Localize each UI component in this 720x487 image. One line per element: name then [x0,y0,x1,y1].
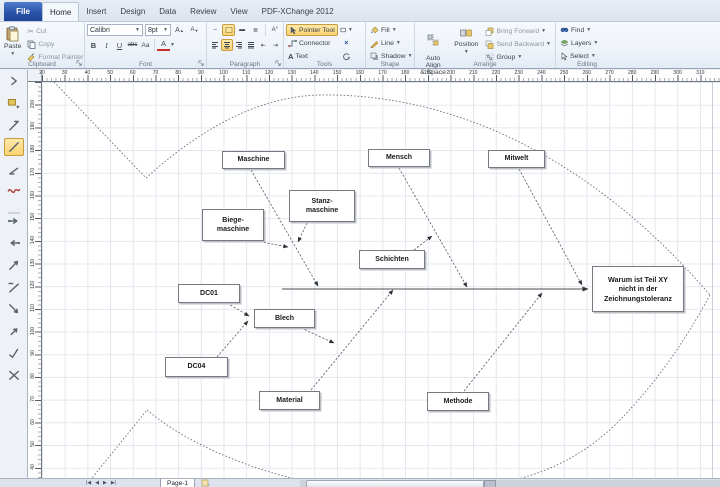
first-page-button[interactable]: |◀ [86,479,91,487]
position-icon [459,26,473,40]
tab-home[interactable]: Home [42,2,79,21]
paste-caret-icon: ▼ [10,51,15,57]
stencil-fishbone-shape-icon[interactable] [4,182,24,200]
stencil-line-shape-icon[interactable] [4,160,24,178]
h-ruler-label: 290 [648,70,662,76]
diagram-box-mensch[interactable]: Mensch [368,149,430,167]
diagram-box-dc04[interactable]: DC04 [165,357,228,377]
pointer-tool-icon [289,26,297,35]
font-dialog-launcher-icon[interactable] [198,60,205,67]
paste-button[interactable]: Paste ▼ [2,24,23,63]
connection-point-tool-button[interactable]: × [340,37,353,49]
v-ruler-label: 160 [30,188,36,202]
cut-button[interactable]: ✂ Cut [25,25,85,37]
font-color-caret-icon[interactable]: ▼ [170,42,175,48]
v-ruler-label: 90 [30,346,36,360]
h-ruler-label: 20 [35,70,49,76]
h-ruler-label: 300 [671,70,685,76]
ribbon: Paste ▼ ✂ Cut [0,22,720,69]
diagram-box-methode[interactable]: Methode [427,392,489,411]
cut-icon: ✂ [27,27,34,36]
highlighted-paragraph-button[interactable] [222,24,234,36]
h-ruler-label: 150 [330,70,344,76]
v-ruler-label: 170 [30,165,36,179]
diagram-box-mitwelt[interactable]: Mitwelt [488,150,545,168]
tab-design[interactable]: Design [113,2,152,21]
diagram-box-blech[interactable]: Blech [254,309,315,328]
h-ruler-label: 160 [353,70,367,76]
align-right-button[interactable] [234,39,245,51]
h-ruler-label: 280 [625,70,639,76]
h-ruler-label: 140 [307,70,321,76]
stencil-diagonal-arrow-up-icon[interactable] [4,256,24,274]
tab-insert[interactable]: Insert [79,2,113,21]
stencil-small-arrow-icon[interactable] [4,322,24,340]
justify-button[interactable] [246,39,257,51]
find-button[interactable]: Find▼ [558,24,616,36]
v-ruler-label: 100 [30,324,36,338]
find-icon [560,26,569,35]
shrink-font-button[interactable]: A▼ [188,24,201,36]
stencil-selected-shape-icon[interactable] [4,138,24,156]
diagram-box-schichten[interactable]: Schichten [359,250,425,269]
v-ruler-label: 120 [30,278,36,292]
stencil-check-arrow-icon[interactable] [4,344,24,362]
v-ruler-label: 180 [30,142,36,156]
stencil-collapse-chevron-icon[interactable] [4,72,24,90]
font-color-button[interactable]: A [157,39,170,51]
v-ruler-label: 70 [30,392,36,406]
v-ruler-label: 130 [30,256,36,270]
v-ruler-label: 150 [30,210,36,224]
group-clipboard: Paste ▼ ✂ Cut [0,22,85,68]
v-ruler-label: 80 [30,369,36,383]
rectangle-tool-button[interactable]: ▼ [340,24,353,36]
diagram-box-dc01[interactable]: DC01 [178,284,240,303]
h-ruler-label: 170 [376,70,390,76]
v-ruler-label: 40 [30,460,36,474]
group-editing: Find▼ Layers▼ Select▼ Editing [556,22,618,68]
decrease-indent-button[interactable]: ⇤ [258,39,269,51]
stencil-arrow-right-icon[interactable] [4,212,24,230]
position-button[interactable]: Position ▼ [452,24,480,76]
strikethrough-button[interactable]: abc [126,39,139,51]
text-tool-icon: A [288,52,293,61]
tab-data[interactable]: Data [152,2,183,21]
auto-align-icon [426,26,440,54]
h-ruler-label: 30 [58,70,72,76]
vertical-ruler: 2001901801701601501401301201101009080706… [28,82,42,478]
stencil-crossed-arrows-icon[interactable] [4,366,24,384]
fill-button[interactable]: Fill▼ [368,24,412,36]
font-size-select[interactable]: 8pt▼ [145,24,171,36]
h-ruler-label: 80 [171,70,185,76]
v-ruler-label: 110 [30,301,36,315]
h-ruler-label: 130 [285,70,299,76]
text-direction-button[interactable]: A° [269,24,281,36]
italic-button[interactable]: I [100,39,113,51]
stencil-shapes-window-icon[interactable] [4,94,24,112]
h-ruler-label: 90 [194,70,208,76]
connector-button[interactable]: Connector [286,37,338,49]
shadow-icon [370,52,379,61]
h-ruler-label: 270 [603,70,617,76]
h-ruler-label: 100 [217,70,231,76]
last-page-button[interactable]: ▶| [111,479,116,487]
diagram-box-biege[interactable]: Biege- maschine [202,209,264,241]
v-ruler-label: 190 [30,119,36,133]
v-ruler-label: 50 [30,437,36,451]
underline-button[interactable]: U [113,39,126,51]
auto-align-space-button[interactable]: Auto Align & Space [417,24,449,76]
page-tab-bar: |◀ ◀ ▶ ▶| Page-1 [0,478,720,487]
bring-forward-icon [485,27,494,36]
page-tab[interactable]: Page-1 [160,479,195,487]
ribbon-tabs: HomeInsertDesignDataReviewViewPDF-XChang… [42,2,341,21]
h-ruler-label: 310 [693,70,707,76]
h-ruler-label: 110 [239,70,253,76]
group-paragraph: – ▬ ≣ A° [207,22,284,68]
group-arrange: Auto Align & Space Position ▼ Bring Forw… [415,22,556,68]
stencil-arrow-left-icon[interactable] [4,234,24,252]
group-shape: Fill▼ Line▼ Shadow▼ Shape [366,22,415,68]
h-ruler-label: 60 [126,70,140,76]
paragraph-dialog-launcher-icon[interactable] [275,60,282,67]
v-ruler-label: 140 [30,233,36,247]
line-spacing-button[interactable]: ▬ [236,24,248,36]
grow-font-button[interactable]: A▲ [173,24,186,36]
bring-forward-button[interactable]: Bring Forward▼ [483,25,553,37]
stencil-diagonal-line-icon[interactable] [4,278,24,296]
next-page-button[interactable]: ▶ [103,479,107,487]
previous-page-button[interactable]: ◀ [95,479,99,487]
change-case-button[interactable]: Aa [139,39,152,51]
stencil-diagonal-arrow-down-icon[interactable] [4,300,24,318]
h-ruler-label: 260 [580,70,594,76]
align-center-button[interactable] [221,39,232,51]
tab-review[interactable]: Review [183,2,223,21]
stencil-category-shape-icon[interactable] [4,116,24,134]
h-ruler-label: 180 [398,70,412,76]
diagram-box-stanz[interactable]: Stanz- maschine [289,190,355,222]
copy-icon [27,40,36,49]
horizontal-scrollbar-thumb[interactable] [306,480,484,487]
h-ruler-label: 40 [80,70,94,76]
visio-window: File HomeInsertDesignDataReviewViewPDF-X… [0,0,720,487]
diagram-box-maschine[interactable]: Maschine [222,151,285,169]
group-tools: Pointer Tool Connector A Text [284,22,366,68]
insert-page-icon[interactable] [201,479,210,487]
layers-icon [560,39,569,48]
shapes-stencil-panel [0,70,28,478]
bold-button[interactable]: B [87,39,100,51]
font-family-select[interactable]: Calibri▼ [87,24,143,36]
align-left-button[interactable] [209,39,220,51]
send-backward-button[interactable]: Send Backward▼ [483,38,553,50]
copy-button[interactable]: Copy [25,38,85,50]
h-ruler-label: 120 [262,70,276,76]
line-button[interactable]: Line▼ [368,37,412,49]
h-ruler-label: 70 [149,70,163,76]
bullets-button[interactable]: – [209,24,221,36]
layers-button[interactable]: Layers▼ [558,37,616,49]
h-ruler-label: 50 [103,70,117,76]
connector-icon [288,39,297,48]
tab-view[interactable]: View [223,2,254,21]
v-ruler-label: 200 [30,97,36,111]
line-icon [370,39,379,48]
ribbon-tab-bar: File HomeInsertDesignDataReviewViewPDF-X… [0,0,720,22]
h-ruler-label: 250 [557,70,571,76]
tab-pdf-xchange-2012[interactable]: PDF-XChange 2012 [255,2,341,21]
diagram-box-effect[interactable]: Warum ist Teil XY nicht in der Zeichnung… [592,266,684,312]
paste-icon [5,26,20,42]
scrollbar-splitter[interactable] [484,480,496,487]
list-button[interactable]: ≣ [249,24,261,36]
clipboard-dialog-launcher-icon[interactable] [76,60,83,67]
horizontal-scrollbar[interactable] [300,480,720,487]
increase-indent-button[interactable]: ⇥ [270,39,281,51]
v-ruler-label: 60 [30,415,36,429]
fill-icon [370,26,379,35]
tab-file[interactable]: File [4,2,42,21]
horizontal-ruler: 2030405060708090100110120130140150160170… [42,70,720,82]
group-font: Calibri▼ 8pt▼ A▲ A▼ B I U abc Aa A ▼ [85,22,207,68]
send-backward-icon [485,40,494,49]
page-edge [712,82,713,478]
pointer-tool-button[interactable]: Pointer Tool [286,24,338,36]
select-icon [560,52,568,61]
diagram-box-material[interactable]: Material [259,391,320,410]
